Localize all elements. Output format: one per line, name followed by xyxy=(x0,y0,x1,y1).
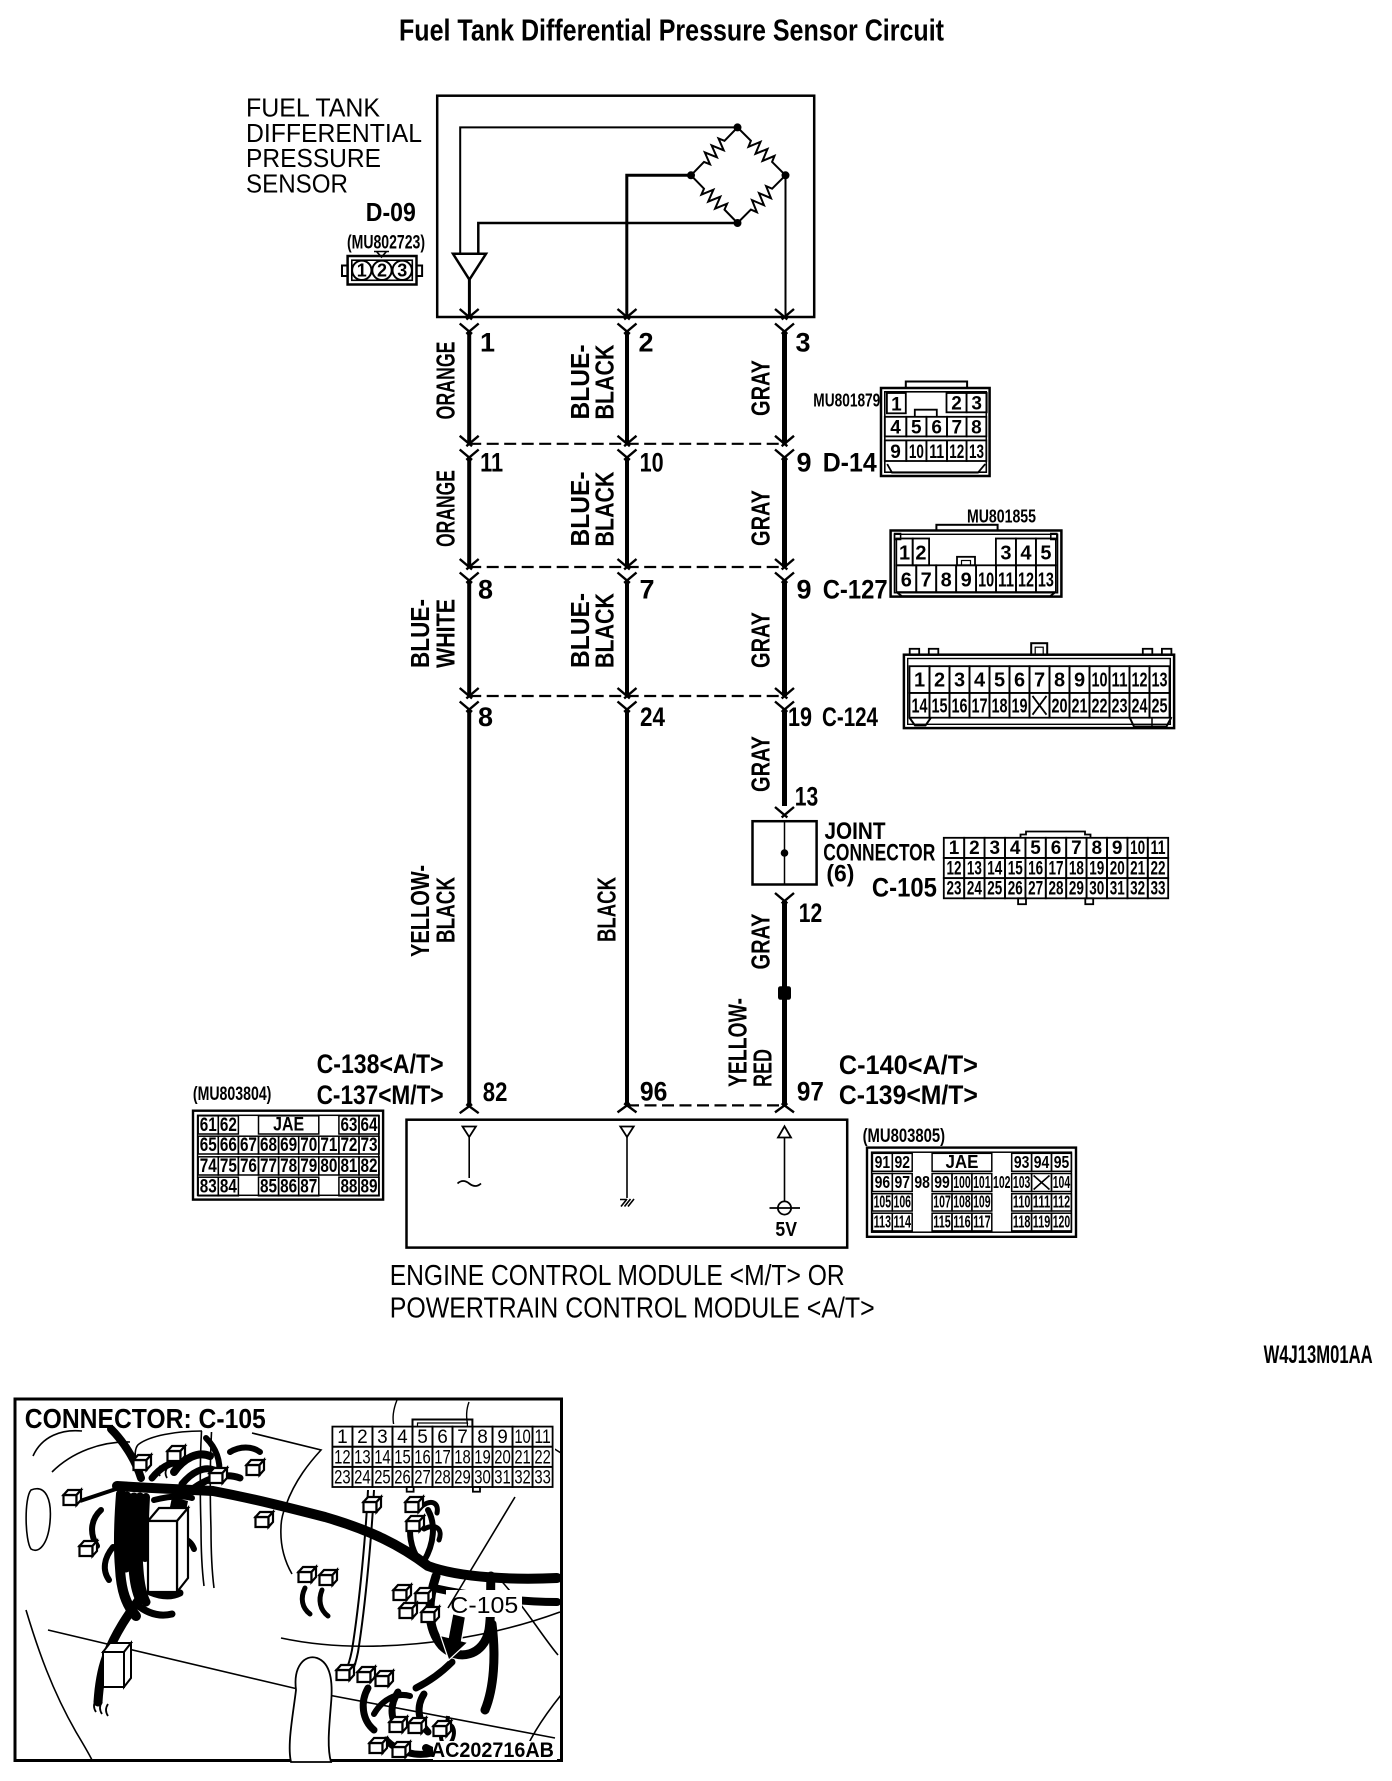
svg-text:18: 18 xyxy=(454,1447,471,1468)
svg-text:(6): (6) xyxy=(826,861,854,888)
svg-text:1: 1 xyxy=(480,328,495,358)
svg-text:112: 112 xyxy=(1053,1192,1071,1212)
svg-text:BLACK: BLACK xyxy=(592,877,622,942)
svg-text:22: 22 xyxy=(534,1447,551,1468)
svg-text:8: 8 xyxy=(478,574,493,604)
svg-text:5: 5 xyxy=(1040,543,1051,565)
svg-text:1: 1 xyxy=(899,543,910,565)
svg-text:3: 3 xyxy=(1000,543,1011,565)
svg-text:2: 2 xyxy=(969,838,980,859)
svg-text:9: 9 xyxy=(797,574,812,604)
svg-text:8: 8 xyxy=(478,702,493,732)
svg-text:C-138<A/T>: C-138<A/T> xyxy=(317,1049,444,1079)
svg-text:73: 73 xyxy=(361,1135,378,1156)
svg-text:12: 12 xyxy=(1132,670,1148,692)
svg-text:31: 31 xyxy=(1110,878,1125,899)
svg-text:114: 114 xyxy=(894,1212,912,1232)
svg-text:13: 13 xyxy=(969,442,984,463)
svg-text:100: 100 xyxy=(953,1172,971,1192)
svg-text:16: 16 xyxy=(952,695,968,717)
svg-text:117: 117 xyxy=(973,1212,991,1232)
svg-text:97: 97 xyxy=(797,1077,824,1107)
svg-text:3: 3 xyxy=(971,394,982,415)
svg-text:ENGINE CONTROL MODULE <M/T> OR: ENGINE CONTROL MODULE <M/T> OR xyxy=(390,1260,845,1292)
svg-text:17: 17 xyxy=(972,695,988,717)
svg-text:14: 14 xyxy=(912,695,929,717)
svg-text:1: 1 xyxy=(891,395,902,416)
svg-text:C-137<M/T>: C-137<M/T> xyxy=(317,1080,444,1110)
svg-text:103: 103 xyxy=(1013,1172,1031,1192)
svg-text:12: 12 xyxy=(1018,569,1034,591)
svg-text:4: 4 xyxy=(890,418,901,439)
svg-text:23: 23 xyxy=(334,1467,351,1488)
svg-text:13: 13 xyxy=(1152,670,1168,692)
svg-text:105: 105 xyxy=(874,1192,892,1212)
svg-text:72: 72 xyxy=(340,1135,357,1156)
svg-text:9: 9 xyxy=(1112,838,1123,859)
svg-text:24: 24 xyxy=(967,878,982,899)
svg-text:C-105: C-105 xyxy=(872,872,937,902)
svg-text:C-105: C-105 xyxy=(450,1592,518,1618)
svg-text:94: 94 xyxy=(1034,1152,1050,1172)
svg-text:84: 84 xyxy=(220,1177,237,1198)
svg-text:88: 88 xyxy=(340,1177,357,1198)
svg-text:9: 9 xyxy=(497,1427,508,1448)
svg-text:15: 15 xyxy=(1008,858,1023,879)
svg-text:18: 18 xyxy=(1069,858,1084,879)
svg-text:77: 77 xyxy=(260,1156,277,1177)
svg-text:2: 2 xyxy=(377,261,387,281)
svg-text:11: 11 xyxy=(534,1427,551,1448)
svg-text:ORANGE: ORANGE xyxy=(431,470,461,547)
svg-text:93: 93 xyxy=(1014,1152,1030,1172)
svg-text:10: 10 xyxy=(1130,838,1145,859)
svg-text:76: 76 xyxy=(240,1156,257,1177)
svg-text:24: 24 xyxy=(354,1467,371,1488)
svg-text:7: 7 xyxy=(640,574,655,604)
svg-text:2: 2 xyxy=(357,1427,368,1448)
svg-text:(MU803805): (MU803805) xyxy=(863,1126,946,1147)
svg-text:33: 33 xyxy=(1151,878,1166,899)
svg-text:96: 96 xyxy=(640,1077,668,1107)
svg-text:70: 70 xyxy=(300,1135,317,1156)
svg-text:91: 91 xyxy=(875,1152,891,1172)
svg-text:9: 9 xyxy=(797,447,812,477)
svg-text:12: 12 xyxy=(947,858,962,879)
svg-text:69: 69 xyxy=(280,1135,297,1156)
svg-text:26: 26 xyxy=(1008,878,1023,899)
svg-text:5: 5 xyxy=(911,418,922,439)
svg-text:C-139<M/T>: C-139<M/T> xyxy=(839,1080,978,1110)
svg-text:92: 92 xyxy=(895,1152,911,1172)
svg-text:BLACK: BLACK xyxy=(431,877,461,943)
svg-text:ORANGE: ORANGE xyxy=(431,342,461,420)
svg-text:9: 9 xyxy=(1074,670,1085,692)
svg-text:5V: 5V xyxy=(775,1219,797,1241)
svg-text:119: 119 xyxy=(1033,1212,1051,1232)
svg-text:63: 63 xyxy=(340,1115,357,1136)
svg-text:CONNECTOR: C-105: CONNECTOR: C-105 xyxy=(25,1403,266,1434)
svg-text:24: 24 xyxy=(1132,695,1149,717)
svg-text:23: 23 xyxy=(947,878,962,899)
svg-text:WHITE: WHITE xyxy=(431,599,461,668)
svg-text:BLACK: BLACK xyxy=(590,344,620,419)
svg-text:29: 29 xyxy=(1069,878,1084,899)
svg-text:15: 15 xyxy=(394,1447,411,1468)
svg-text:RED: RED xyxy=(748,1049,778,1087)
svg-text:101: 101 xyxy=(973,1172,991,1192)
svg-text:13: 13 xyxy=(354,1447,371,1468)
svg-text:27: 27 xyxy=(1028,878,1043,899)
svg-text:13: 13 xyxy=(967,858,982,879)
svg-text:26: 26 xyxy=(394,1467,411,1488)
svg-text:102: 102 xyxy=(993,1172,1011,1192)
svg-text:13: 13 xyxy=(795,781,819,811)
svg-text:104: 104 xyxy=(1053,1172,1071,1192)
svg-text:19: 19 xyxy=(788,702,812,732)
svg-text:65: 65 xyxy=(200,1135,217,1156)
svg-text:GRAY: GRAY xyxy=(746,490,776,546)
svg-text:16: 16 xyxy=(414,1447,431,1468)
svg-text:75: 75 xyxy=(220,1156,237,1177)
svg-text:62: 62 xyxy=(220,1115,237,1136)
svg-text:9: 9 xyxy=(961,569,972,591)
svg-text:D-09: D-09 xyxy=(366,197,416,227)
svg-text:2: 2 xyxy=(915,543,926,565)
svg-text:18: 18 xyxy=(992,695,1008,717)
svg-text:14: 14 xyxy=(374,1447,391,1468)
svg-text:19: 19 xyxy=(1089,858,1104,879)
svg-text:7: 7 xyxy=(1071,838,1082,859)
svg-text:110: 110 xyxy=(1013,1192,1031,1212)
svg-text:67: 67 xyxy=(240,1135,257,1156)
svg-text:96: 96 xyxy=(875,1172,891,1192)
svg-text:6: 6 xyxy=(1051,838,1062,859)
svg-text:28: 28 xyxy=(1049,878,1064,899)
svg-text:32: 32 xyxy=(514,1467,531,1488)
svg-text:7: 7 xyxy=(921,569,932,591)
svg-text:98: 98 xyxy=(914,1172,930,1192)
svg-text:20: 20 xyxy=(494,1447,511,1468)
svg-text:11: 11 xyxy=(1112,670,1128,692)
svg-text:109: 109 xyxy=(973,1192,991,1212)
svg-text:21: 21 xyxy=(1072,695,1088,717)
svg-text:27: 27 xyxy=(414,1467,431,1488)
svg-text:9: 9 xyxy=(890,442,901,463)
svg-text:7: 7 xyxy=(457,1427,468,1448)
svg-text:32: 32 xyxy=(1130,878,1145,899)
svg-text:89: 89 xyxy=(361,1177,378,1198)
svg-text:68: 68 xyxy=(260,1135,277,1156)
svg-text:25: 25 xyxy=(987,878,1002,899)
svg-text:MU801879: MU801879 xyxy=(813,391,880,411)
svg-text:82: 82 xyxy=(483,1077,508,1107)
svg-text:D-14: D-14 xyxy=(823,447,877,477)
svg-text:3: 3 xyxy=(377,1427,388,1448)
svg-text:1: 1 xyxy=(914,670,925,692)
svg-text:POWERTRAIN CONTROL MODULE <A/T: POWERTRAIN CONTROL MODULE <A/T> xyxy=(390,1293,875,1325)
svg-text:22: 22 xyxy=(1092,695,1108,717)
svg-text:82: 82 xyxy=(361,1156,378,1177)
svg-text:19: 19 xyxy=(474,1447,491,1468)
svg-text:33: 33 xyxy=(534,1467,551,1488)
svg-text:120: 120 xyxy=(1053,1212,1071,1232)
svg-text:8: 8 xyxy=(941,569,952,591)
svg-text:C-140<A/T>: C-140<A/T> xyxy=(839,1050,978,1080)
svg-text:11: 11 xyxy=(998,569,1014,591)
svg-text:16: 16 xyxy=(1028,858,1043,879)
svg-text:21: 21 xyxy=(1130,858,1145,879)
svg-text:23: 23 xyxy=(1112,695,1128,717)
svg-text:1: 1 xyxy=(337,1427,348,1448)
svg-text:78: 78 xyxy=(280,1156,297,1177)
svg-text:11: 11 xyxy=(929,442,944,463)
svg-text:7: 7 xyxy=(952,418,963,439)
svg-text:4: 4 xyxy=(1010,838,1021,859)
svg-text:7: 7 xyxy=(1034,670,1045,692)
svg-text:8: 8 xyxy=(1054,670,1065,692)
svg-text:31: 31 xyxy=(494,1467,511,1488)
svg-text:21: 21 xyxy=(514,1447,531,1468)
svg-text:5: 5 xyxy=(994,670,1005,692)
svg-text:80: 80 xyxy=(320,1156,337,1177)
svg-text:3: 3 xyxy=(954,670,965,692)
svg-text:4: 4 xyxy=(1020,543,1032,565)
svg-text:3: 3 xyxy=(796,328,811,358)
svg-text:3: 3 xyxy=(397,261,407,281)
svg-text:8: 8 xyxy=(1092,838,1103,859)
svg-text:12: 12 xyxy=(949,442,964,463)
svg-text:BLACK: BLACK xyxy=(590,471,620,546)
svg-text:6: 6 xyxy=(1014,670,1025,692)
svg-text:JAE: JAE xyxy=(945,1152,978,1172)
svg-text:(MU803804): (MU803804) xyxy=(193,1084,272,1105)
svg-text:10: 10 xyxy=(1092,670,1108,692)
svg-text:61: 61 xyxy=(200,1115,217,1136)
svg-text:Fuel Tank Differential Pressur: Fuel Tank Differential Pressure Sensor C… xyxy=(399,13,944,48)
svg-text:87: 87 xyxy=(300,1177,317,1198)
svg-text:107: 107 xyxy=(933,1192,951,1212)
svg-text:15: 15 xyxy=(932,695,948,717)
svg-text:GRAY: GRAY xyxy=(746,914,776,970)
svg-text:118: 118 xyxy=(1013,1212,1031,1232)
svg-text:64: 64 xyxy=(361,1115,378,1136)
svg-text:29: 29 xyxy=(454,1467,471,1488)
svg-text:12: 12 xyxy=(334,1447,351,1468)
svg-text:86: 86 xyxy=(280,1177,297,1198)
svg-text:11: 11 xyxy=(480,447,503,477)
svg-text:66: 66 xyxy=(220,1135,237,1156)
svg-text:C-124: C-124 xyxy=(822,702,878,732)
svg-text:2: 2 xyxy=(951,394,962,415)
svg-text:11: 11 xyxy=(1151,838,1166,859)
svg-text:20: 20 xyxy=(1110,858,1125,879)
svg-text:25: 25 xyxy=(374,1467,391,1488)
svg-text:5: 5 xyxy=(1030,838,1041,859)
svg-text:30: 30 xyxy=(474,1467,491,1488)
svg-text:(MU802723): (MU802723) xyxy=(347,233,425,254)
svg-text:JAE: JAE xyxy=(273,1115,304,1136)
svg-text:20: 20 xyxy=(1052,695,1068,717)
svg-text:C-127: C-127 xyxy=(823,574,888,604)
svg-text:74: 74 xyxy=(200,1156,217,1177)
svg-text:97: 97 xyxy=(895,1172,911,1192)
svg-text:4: 4 xyxy=(397,1427,408,1448)
svg-text:10: 10 xyxy=(514,1427,531,1448)
svg-text:6: 6 xyxy=(437,1427,448,1448)
svg-text:6: 6 xyxy=(901,569,912,591)
svg-text:10: 10 xyxy=(978,569,994,591)
svg-text:AC202716AB: AC202716AB xyxy=(431,1739,554,1762)
svg-text:10: 10 xyxy=(640,447,664,477)
svg-text:115: 115 xyxy=(933,1212,951,1232)
svg-text:2: 2 xyxy=(934,670,945,692)
svg-text:10: 10 xyxy=(909,442,924,463)
svg-text:6: 6 xyxy=(931,418,942,439)
svg-text:22: 22 xyxy=(1151,858,1166,879)
svg-text:4: 4 xyxy=(974,670,986,692)
svg-text:3: 3 xyxy=(990,838,1001,859)
svg-text:83: 83 xyxy=(200,1177,217,1198)
svg-text:108: 108 xyxy=(953,1192,971,1212)
svg-text:8: 8 xyxy=(477,1427,488,1448)
svg-text:30: 30 xyxy=(1089,878,1104,899)
svg-text:24: 24 xyxy=(640,702,665,732)
svg-text:71: 71 xyxy=(320,1135,337,1156)
svg-text:GRAY: GRAY xyxy=(746,360,776,416)
svg-text:113: 113 xyxy=(874,1212,892,1232)
svg-text:1: 1 xyxy=(949,838,960,859)
svg-text:81: 81 xyxy=(340,1156,357,1177)
svg-text:8: 8 xyxy=(971,418,982,439)
svg-text:SENSOR: SENSOR xyxy=(246,168,348,198)
svg-text:W4J13M01AA: W4J13M01AA xyxy=(1264,1341,1373,1369)
svg-text:14: 14 xyxy=(987,858,1002,879)
svg-text:25: 25 xyxy=(1152,695,1168,717)
svg-text:13: 13 xyxy=(1038,569,1054,591)
svg-text:116: 116 xyxy=(953,1212,971,1232)
svg-text:28: 28 xyxy=(434,1467,451,1488)
svg-text:111: 111 xyxy=(1033,1192,1051,1212)
svg-text:MU801855: MU801855 xyxy=(967,507,1036,527)
svg-text:GRAY: GRAY xyxy=(746,736,776,792)
svg-text:5: 5 xyxy=(417,1427,428,1448)
svg-text:95: 95 xyxy=(1054,1152,1070,1172)
svg-text:1: 1 xyxy=(357,261,367,281)
svg-text:12: 12 xyxy=(799,898,823,928)
svg-text:GRAY: GRAY xyxy=(746,612,776,668)
svg-text:17: 17 xyxy=(1049,858,1064,879)
svg-text:17: 17 xyxy=(434,1447,451,1468)
svg-text:BLACK: BLACK xyxy=(590,593,620,668)
svg-text:19: 19 xyxy=(1012,695,1028,717)
svg-text:2: 2 xyxy=(639,328,654,358)
svg-text:99: 99 xyxy=(934,1172,950,1192)
svg-text:106: 106 xyxy=(894,1192,912,1212)
svg-text:79: 79 xyxy=(300,1156,317,1177)
svg-text:85: 85 xyxy=(260,1177,277,1198)
